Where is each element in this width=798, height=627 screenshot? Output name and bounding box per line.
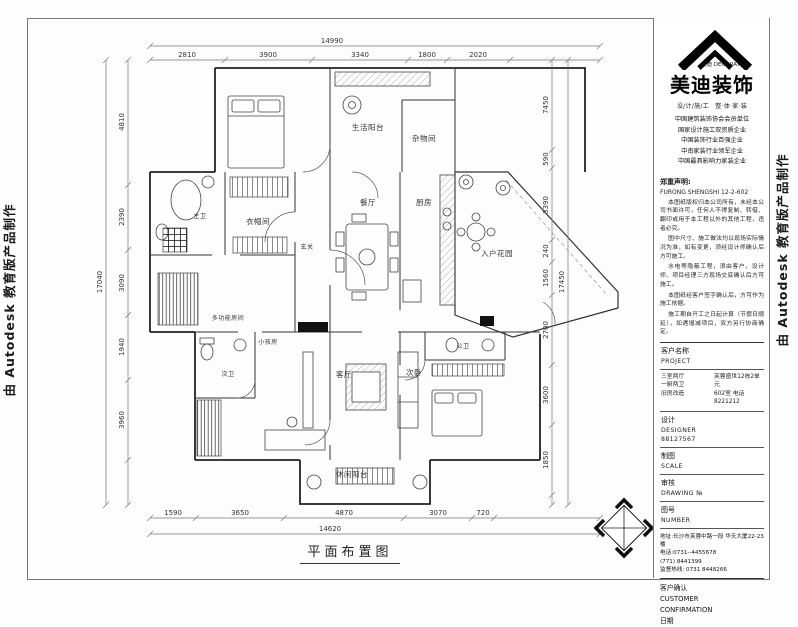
field-value: 旧房改造 [661, 390, 710, 398]
brand-tagline: 设/计/施/工 整·体·家·装 [660, 101, 764, 110]
contact-info: 地址:长沙市芙蓉中路一段 华天大厦22-23楼 电话:0731--4455678… [660, 533, 764, 575]
confirm-date-label: 日期 [660, 616, 764, 627]
dim-left-overall: 17040 [96, 271, 104, 293]
field-label: 客户名称 [661, 346, 763, 356]
room-label-second-bedroom: 次卧 [406, 367, 422, 377]
room-label-kids-room: 小孩房 [258, 338, 278, 346]
field-scale: 制图 SCALE [660, 448, 764, 475]
field-value: 三室两厅 [661, 373, 710, 381]
field-value: DESIGNER [661, 427, 763, 434]
field-value: NUMBER [661, 517, 763, 524]
entry-garden-wall [455, 172, 618, 337]
notes-paragraph: 本图纸经客户签字确认后，方可作为施工依据。 [660, 292, 764, 309]
notes-heading: 郑重声明: [660, 177, 764, 187]
autodesk-watermark-right: 由 Autodesk 教育版产品制作 [775, 100, 791, 400]
room-label-living: 客厅 [336, 369, 352, 379]
dim-label: 3090 [118, 274, 126, 292]
dim-top-overall: 14990 [321, 37, 343, 45]
notes-paragraph: 水电等隐蔽工程，须由客户、设计师、项目经理三方现场交底确认后方可施工。 [660, 263, 764, 289]
title-block-fields: 客户名称 PROJECT 三室两厅 一厨两卫 旧房改造 芙蓉盛世12栋2单元 6… [660, 342, 764, 529]
field-value: 602室 电话8221212 [714, 390, 763, 407]
dim-label: 1590 [164, 509, 182, 517]
room-label-foyer: 玄关 [300, 243, 313, 251]
room-label-leisure-balcony: 休闲阳台 [336, 469, 368, 479]
autodesk-watermark-left: 由 Autodesk 教育版产品制作 [2, 150, 18, 450]
room-label-storage: 杂物间 [412, 133, 436, 143]
field-value: PROJECT [661, 358, 763, 365]
company-logo: 美迪 DECORATION 美迪装饰 [660, 26, 764, 98]
dim-label: 2020 [469, 51, 487, 59]
notes-code: FURONG SHENGSHI 12-2-602 [660, 189, 764, 196]
dim-label: 3600 [542, 386, 550, 404]
cert-line: 中国最具影响力家装企业 [660, 157, 764, 168]
dim-label: 1800 [418, 51, 436, 59]
field-value: DRAWING № [661, 490, 763, 497]
room-label-life-balcony: 生活阳台 [352, 122, 384, 132]
cert-line: 国家设计施工双资质企业 [660, 126, 764, 137]
field-label: 审核 [661, 478, 763, 488]
dim-label: 3900 [259, 51, 277, 59]
dim-label: 1940 [118, 338, 126, 356]
drawing-caption: 平面布置图 [300, 541, 400, 564]
dim-label: 240 [542, 244, 550, 257]
dim-label: 3650 [231, 509, 249, 517]
dim-right-overall: 17450 [558, 271, 566, 293]
logo-subtext: 美迪 DECORATION [660, 60, 764, 68]
confirm-en: CUSTOMER [660, 594, 764, 605]
title-block: 美迪 DECORATION 美迪装饰 设/计/施/工 整·体·家·装 中国建筑装… [653, 18, 769, 578]
dim-label: 590 [542, 152, 550, 165]
dim-label: 1560 [542, 269, 550, 287]
dim-label: 3960 [118, 411, 126, 429]
cert-line: 中南家装行业领军企业 [660, 147, 764, 158]
field-value: 88127567 [661, 436, 763, 443]
cert-line: 中国建筑装饰协会会员单位 [660, 115, 764, 126]
cert-line: 中国装饰行业百强企业 [660, 136, 764, 147]
room-label-second-bath: 次卫 [221, 370, 234, 378]
certifications: 中国建筑装饰协会会员单位 国家设计施工双资质企业 中国装饰行业百强企业 中南家装… [660, 115, 764, 168]
dim-label: 3070 [429, 509, 447, 517]
field-value: SCALE [661, 463, 763, 470]
room-label-entry-garden: 入户花园 [481, 248, 513, 258]
field-value: 一厨两卫 [661, 381, 710, 389]
field-number: 图号 NUMBER [660, 502, 764, 529]
floor-plan-drawing: 生活阳台 杂物间 餐厅 厨房 入户花园 主卫 衣帽间 玄关 多功能房间 小孩房 … [0, 0, 660, 593]
north-marker-icon [596, 500, 652, 556]
room-label-public-bath: 公卫 [456, 343, 469, 350]
field-label: 图号 [661, 505, 763, 515]
room-label-dining: 餐厅 [360, 198, 376, 207]
field-client: 客户名称 PROJECT [660, 343, 764, 370]
dim-label: 2390 [118, 208, 126, 226]
field-check: 审核 DRAWING № [660, 475, 764, 502]
field-value: 芙蓉盛世12栋2单元 [714, 373, 763, 390]
phone-line: 电话:0731--4455678 [660, 549, 764, 557]
room-label-cloakroom: 衣帽间 [246, 216, 270, 226]
dim-bottom-overall: 14620 [319, 525, 341, 533]
dim-label: 720 [476, 509, 489, 517]
confirm-en: CONFIRMATION [660, 605, 764, 616]
notes-paragraph: 施工期自开工之日起计算（节假日顺延），如遇增减项目，双方另行协商确定。 [660, 311, 764, 337]
dim-label: 3390 [542, 196, 550, 214]
field-label: 设计 [661, 415, 763, 425]
field-project-info: 三室两厅 一厨两卫 旧房改造 芙蓉盛世12栋2单元 602室 电话8221212 [660, 370, 764, 412]
dim-label: 2810 [178, 51, 196, 59]
logo-name: 美迪装饰 [660, 69, 764, 98]
hotline-line: 监督热线: 0731 8448266 [660, 566, 764, 574]
field-label: 制图 [661, 451, 763, 461]
dim-label: 4870 [335, 509, 353, 517]
entry-garden-inner-line [506, 180, 608, 296]
customer-confirmation: 客户确认 CUSTOMER CONFIRMATION 日期 [660, 578, 764, 627]
dim-label: 7450 [542, 96, 550, 114]
notes-paragraph: 本图纸版权归本公司所有，未经本公司书面许可，任何人不得复制、转借、翻印或用于本工… [660, 199, 764, 234]
notes-section: 郑重声明: FURONG SHENGSHI 12-2-602 本图纸版权归本公司… [660, 177, 764, 337]
room-label-kitchen: 厨房 [416, 197, 432, 207]
dim-label: 2700 [542, 321, 550, 339]
dim-label: 1850 [542, 451, 550, 469]
notes-paragraph: 图中尺寸、施工做法均以现场实际情况为准，如有变更，须经设计师确认后方可施工。 [660, 235, 764, 261]
dim-label: 3340 [351, 51, 369, 59]
phone-line: (771) 8441399 [660, 558, 764, 566]
address-line: 地址:长沙市芙蓉中路一段 华天大厦22-23楼 [660, 533, 764, 550]
room-label-multifunction: 多功能房间 [212, 314, 245, 322]
room-label-master-bath: 主卫 [193, 212, 206, 220]
field-designer: 设计 DESIGNER 88127567 [660, 412, 764, 448]
cad-floorplan-sheet: { "caption": "平面布置图", "watermarks": { "l… [0, 0, 798, 593]
dim-label: 4810 [118, 113, 126, 131]
